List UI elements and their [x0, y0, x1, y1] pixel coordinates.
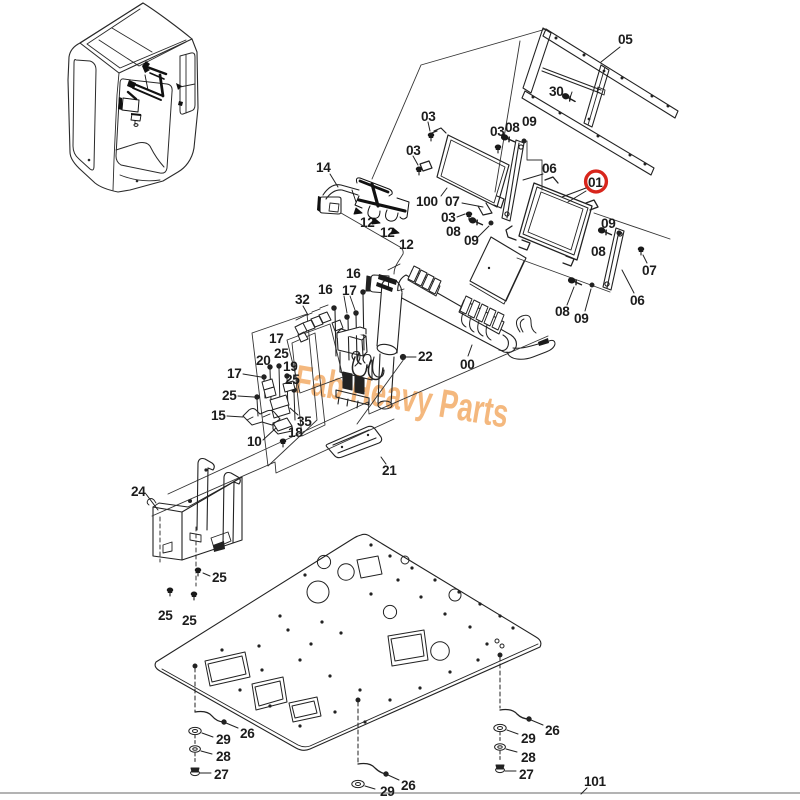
svg-text:10: 10 [247, 434, 262, 449]
svg-text:05: 05 [618, 32, 633, 47]
svg-text:15: 15 [211, 408, 226, 423]
svg-text:07: 07 [445, 194, 460, 209]
svg-text:17: 17 [269, 331, 284, 346]
svg-text:28: 28 [216, 749, 231, 764]
svg-text:01: 01 [588, 175, 603, 190]
svg-text:26: 26 [401, 778, 416, 793]
svg-text:18: 18 [288, 425, 303, 440]
svg-text:08: 08 [555, 304, 570, 319]
svg-text:29: 29 [216, 732, 231, 747]
svg-text:28: 28 [521, 750, 536, 765]
svg-text:08: 08 [505, 120, 520, 135]
svg-text:25: 25 [158, 608, 173, 623]
svg-text:03: 03 [441, 210, 456, 225]
svg-text:16: 16 [346, 266, 361, 281]
svg-text:08: 08 [591, 244, 606, 259]
svg-text:29: 29 [521, 731, 536, 746]
svg-text:20: 20 [256, 353, 271, 368]
svg-text:14: 14 [316, 160, 331, 175]
svg-text:30: 30 [549, 84, 564, 99]
svg-text:12: 12 [399, 237, 414, 252]
svg-text:26: 26 [545, 723, 560, 738]
svg-text:08: 08 [446, 224, 461, 239]
svg-text:27: 27 [214, 767, 229, 782]
svg-text:25: 25 [182, 613, 197, 628]
svg-text:32: 32 [295, 292, 310, 307]
svg-text:03: 03 [406, 143, 421, 158]
svg-text:21: 21 [382, 463, 397, 478]
svg-text:09: 09 [522, 114, 537, 129]
svg-text:25: 25 [285, 372, 300, 387]
svg-text:16: 16 [318, 282, 333, 297]
svg-text:07: 07 [642, 263, 657, 278]
svg-text:26: 26 [240, 726, 255, 741]
svg-text:25: 25 [222, 388, 237, 403]
svg-text:09: 09 [464, 233, 479, 248]
svg-text:25: 25 [212, 570, 227, 585]
svg-text:09: 09 [574, 311, 589, 326]
svg-text:00: 00 [460, 357, 475, 372]
svg-text:27: 27 [519, 767, 534, 782]
svg-text:06: 06 [542, 161, 557, 176]
svg-text:24: 24 [131, 484, 146, 499]
svg-text:06: 06 [630, 293, 645, 308]
svg-text:101: 101 [584, 774, 607, 789]
svg-text:100: 100 [416, 194, 438, 209]
svg-text:22: 22 [418, 349, 433, 364]
svg-text:29: 29 [380, 784, 395, 799]
svg-text:17: 17 [227, 366, 242, 381]
svg-text:03: 03 [421, 109, 436, 124]
